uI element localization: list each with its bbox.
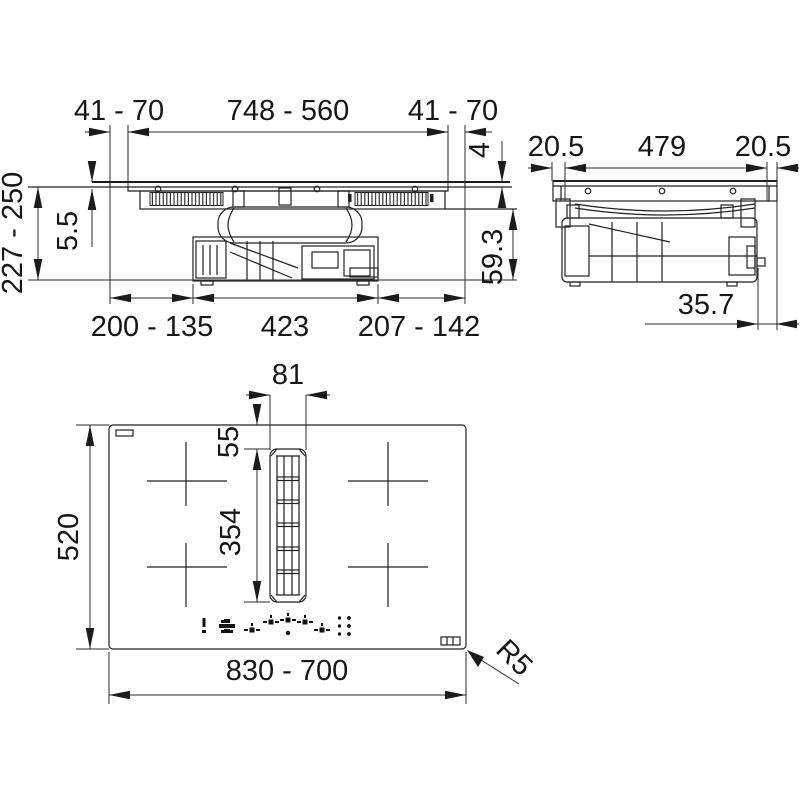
dim-corner-radius: R5 [490, 634, 539, 683]
arrowhead [253, 404, 262, 425]
technical-drawing-page: 41 - 70 748 - 560 41 - 70 227 - 250 5.5 … [0, 0, 800, 800]
front-worktop-lines [28, 182, 512, 187]
arrowhead [509, 259, 518, 280]
dim-hob-width: 830 - 700 [226, 655, 349, 687]
plan-view: 81 55 354 520 830 - 700 R5 [53, 359, 538, 704]
hood-zone-icon [280, 613, 296, 635]
dim-cutout-left: 41 - 70 [74, 95, 164, 127]
front-motor-unit [193, 237, 378, 285]
arrowhead [777, 164, 798, 173]
side-view: 20.5 479 20.5 35.7 [528, 131, 799, 330]
dim-glass-lip: 5.5 [52, 211, 84, 251]
zone-rear-right-icon [314, 623, 330, 633]
dim-cutout-width: 748 - 560 [227, 95, 350, 127]
side-dimension-lines [528, 162, 799, 330]
arrowhead [746, 164, 767, 173]
arrowhead [509, 209, 518, 230]
zone-front-left-icon [263, 615, 279, 625]
dim-cutout-right: 41 - 70 [408, 95, 498, 127]
dim-motor-width: 423 [261, 311, 309, 343]
front-grille-right [355, 193, 428, 206]
power-icon [202, 618, 206, 633]
arrowhead [427, 128, 448, 137]
control-icon-strip [202, 613, 351, 636]
arrowhead [109, 691, 130, 700]
arrowhead [88, 189, 97, 210]
arrowhead [565, 164, 586, 173]
side-carriage [556, 199, 755, 227]
dim-height-range: 227 - 250 [0, 172, 29, 295]
dim-bottom-left: 200 - 135 [91, 311, 214, 343]
front-plenum [218, 207, 362, 243]
arrowhead [253, 449, 262, 470]
arrowhead [34, 187, 43, 208]
side-motor-unit [562, 218, 765, 286]
dim-vent-width: 81 [272, 359, 304, 391]
arrowhead [357, 294, 378, 303]
arrowhead [253, 581, 262, 602]
arrowhead [88, 161, 97, 182]
arrowhead [531, 164, 552, 173]
dim-overhang-right: 20.5 [735, 131, 791, 163]
technical-drawing-canvas: 41 - 70 748 - 560 41 - 70 227 - 250 5.5 … [0, 0, 800, 800]
radius-leader-arrowhead [467, 650, 484, 667]
auto-boost-icon [219, 619, 235, 633]
display-window [441, 637, 460, 645]
arrowhead [89, 128, 110, 137]
dim-overhang-left: 20.5 [528, 131, 584, 163]
dim-shaft-offset: 35.7 [678, 289, 734, 321]
dim-vent-offset: 55 [213, 426, 245, 458]
arrowhead [444, 294, 465, 303]
cooking-zone-marks [147, 442, 428, 607]
arrowhead [737, 320, 758, 329]
dimension-arrowheads [34, 128, 798, 700]
front-hob-body [128, 186, 517, 209]
arrowhead [306, 391, 327, 400]
zone-rear-left-icon [244, 623, 260, 633]
dim-bottom-right: 207 - 142 [358, 311, 481, 343]
arrowhead [465, 128, 486, 137]
intensity-dots-icon [338, 616, 351, 636]
arrowhead [249, 391, 270, 400]
arrowhead [378, 294, 399, 303]
arrowhead [193, 294, 214, 303]
dim-glass-proud: 4 [464, 142, 496, 158]
dim-duct-height: 59.3 [477, 229, 509, 285]
arrowhead [128, 128, 149, 137]
arrowhead [498, 161, 507, 182]
arrowhead [776, 320, 797, 329]
brand-badge [116, 430, 133, 436]
dim-hob-depth: 520 [53, 513, 85, 561]
dim-body-depth: 479 [638, 131, 686, 163]
arrowhead [86, 425, 95, 446]
downdraft-vent-grille [270, 449, 306, 602]
arrowhead [34, 259, 43, 280]
arrowhead [498, 187, 507, 208]
arrowhead [110, 294, 131, 303]
side-glass-slab [553, 181, 777, 201]
front-grille-left [150, 193, 223, 206]
arrowhead [445, 691, 466, 700]
arrowhead [172, 294, 193, 303]
dim-vent-length: 354 [215, 508, 247, 556]
arrowhead [86, 628, 95, 649]
zone-front-right-icon [297, 615, 313, 625]
